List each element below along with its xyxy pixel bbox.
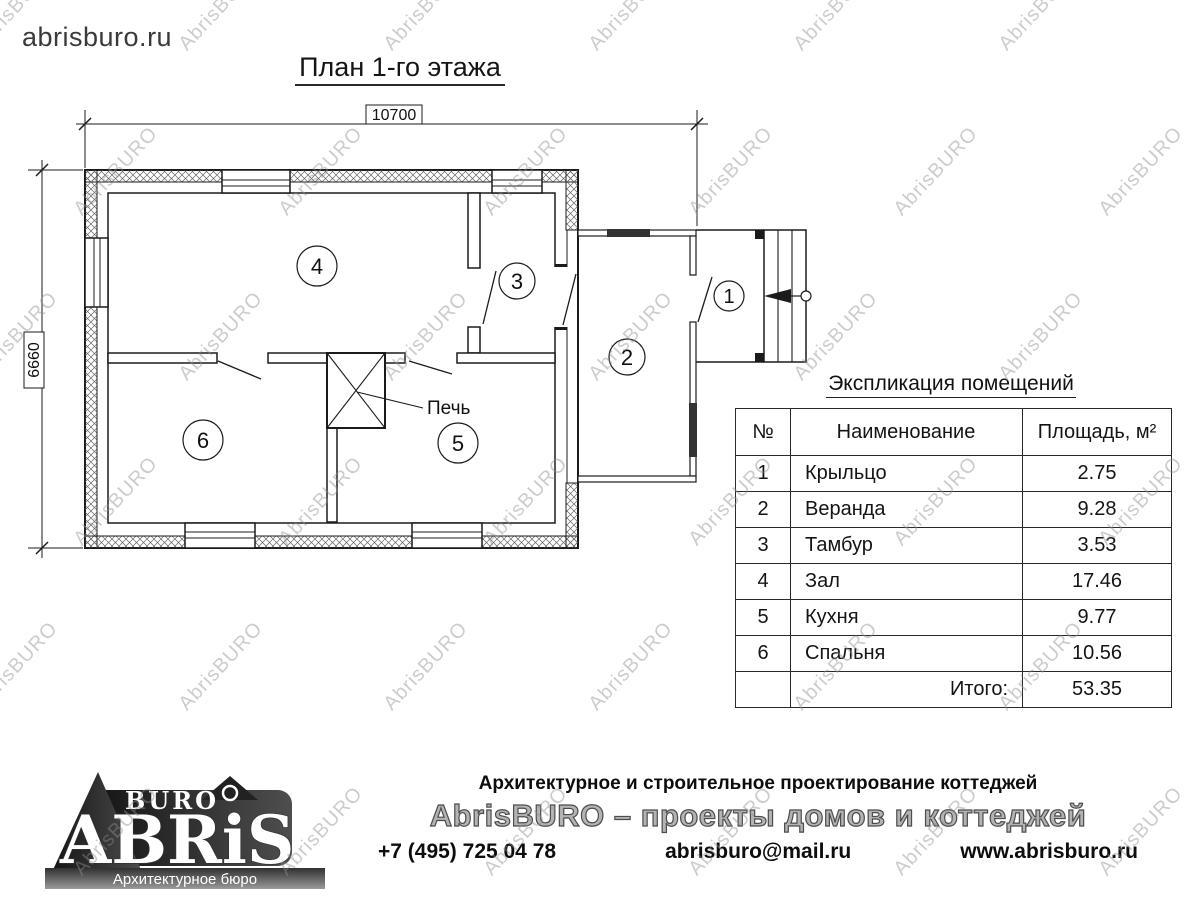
room-area-cell: 9.77	[1023, 600, 1172, 636]
room-name-cell: Тамбур	[791, 528, 1023, 564]
total-label-cell: Итого:	[791, 672, 1023, 708]
logo-abris-text: ABRiS	[59, 801, 295, 879]
rooms-table-section: Экспликация помещений № Наименование Пло…	[735, 372, 1167, 708]
room-name-cell: Зал	[791, 564, 1023, 600]
svg-text:2: 2	[621, 345, 633, 370]
room-number-cell: 5	[736, 600, 791, 636]
floor-plan: 10700 6660	[0, 0, 830, 580]
table-row: 4 Зал 17.46	[736, 564, 1172, 600]
room-number-cell: 3	[736, 528, 791, 564]
footer-line2: AbrisBURO – проекты домов и коттеджей	[372, 798, 1144, 834]
watermark-text: AbrisBURO	[889, 123, 982, 221]
watermark-text: AbrisBURO	[584, 618, 677, 716]
room-area-cell: 9.28	[1023, 492, 1172, 528]
dim-height-label: 6660	[26, 342, 43, 378]
rooms-table: № Наименование Площадь, м² 1 Крыльцо 2.7…	[735, 408, 1172, 708]
room-area-cell: 2.75	[1023, 456, 1172, 492]
footer: BURO ABRiS Архитектурное бюро Архитектур…	[0, 765, 1200, 900]
col-header-name: Наименование	[791, 409, 1023, 456]
logo-tagline: Архитектурное бюро	[113, 871, 257, 888]
empty-cell	[736, 672, 791, 708]
footer-site: www.abrisburo.ru	[960, 840, 1138, 864]
svg-text:4: 4	[311, 254, 323, 279]
watermark-text: AbrisBURO	[994, 0, 1087, 55]
stove-label: Печь	[427, 398, 470, 419]
footer-text-block: Архитектурное и строительное проектирова…	[372, 773, 1144, 864]
porch	[696, 230, 811, 362]
footer-phone: +7 (495) 725 04 78	[378, 840, 556, 864]
watermark-text: AbrisBURO	[174, 618, 267, 716]
watermark-text: AbrisBURO	[994, 288, 1087, 386]
room-area-cell: 10.56	[1023, 636, 1172, 672]
room-number-cell: 4	[736, 564, 791, 600]
room-marker-2: 2	[609, 339, 645, 375]
table-total-row: Итого: 53.35	[736, 672, 1172, 708]
dimension-left: 6660	[24, 160, 83, 558]
veranda-window-top	[607, 229, 650, 237]
table-row: 2 Веранда 9.28	[736, 492, 1172, 528]
room-name-cell: Спальня	[791, 636, 1023, 672]
col-header-area: Площадь, м²	[1023, 409, 1172, 456]
page: abrisburo.ru План 1-го этажа 10700	[0, 0, 1200, 900]
room-number-cell: 1	[736, 456, 791, 492]
footer-line1: Архитектурное и строительное проектирова…	[372, 773, 1144, 795]
svg-text:6: 6	[197, 428, 209, 453]
window-bottom-1	[185, 523, 255, 548]
table-row: 1 Крыльцо 2.75	[736, 456, 1172, 492]
table-header-row: № Наименование Площадь, м²	[736, 409, 1172, 456]
window-top-1	[222, 170, 290, 193]
window-left	[85, 238, 108, 307]
col-header-num: №	[736, 409, 791, 456]
window-bottom-2	[412, 523, 482, 548]
svg-text:3: 3	[511, 269, 523, 294]
room-number-cell: 6	[736, 636, 791, 672]
room-marker-3: 3	[499, 263, 535, 299]
room-name-cell: Веранда	[791, 492, 1023, 528]
room-marker-1: 1	[714, 281, 744, 311]
table-row: 6 Спальня 10.56	[736, 636, 1172, 672]
dim-width-label: 10700	[372, 107, 417, 124]
footer-email: abrisburo@mail.ru	[665, 840, 851, 864]
svg-text:1: 1	[723, 286, 734, 308]
rooms-table-title: Экспликация помещений	[735, 372, 1167, 396]
table-row: 3 Тамбур 3.53	[736, 528, 1172, 564]
watermark-text: AbrisBURO	[379, 618, 472, 716]
room-number-cell: 2	[736, 492, 791, 528]
room-marker-5: 5	[438, 423, 478, 463]
total-value-cell: 53.35	[1023, 672, 1172, 708]
footer-contacts: +7 (495) 725 04 78 abrisburo@mail.ru www…	[372, 840, 1144, 864]
room-marker-6: 6	[183, 420, 223, 460]
watermark-text: AbrisBURO	[0, 618, 63, 716]
logo-chimney-icon	[223, 786, 237, 800]
window-top-2	[492, 170, 542, 193]
table-row: 5 Кухня 9.77	[736, 600, 1172, 636]
veranda-window-right	[689, 403, 697, 457]
room-name-cell: Крыльцо	[791, 456, 1023, 492]
room-marker-4: 4	[297, 246, 337, 286]
room-area-cell: 3.53	[1023, 528, 1172, 564]
watermark-text: AbrisBURO	[1094, 123, 1187, 221]
abris-logo: BURO ABRiS Архитектурное бюро	[30, 768, 350, 900]
room-name-cell: Кухня	[791, 600, 1023, 636]
svg-text:5: 5	[452, 431, 464, 456]
room-area-cell: 17.46	[1023, 564, 1172, 600]
